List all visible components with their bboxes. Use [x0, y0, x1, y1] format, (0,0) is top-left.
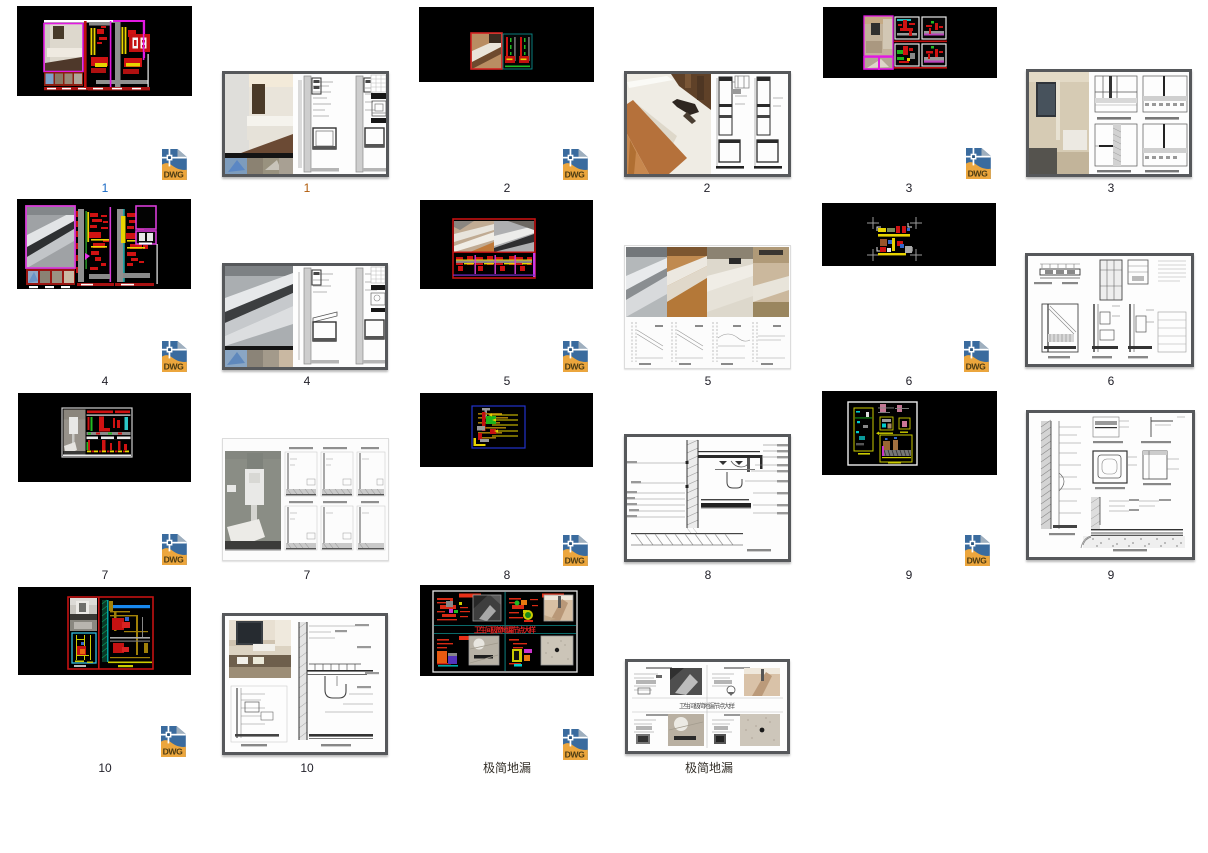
svg-text:卫生间极简地漏节点大样: 卫生间极简地漏节点大样: [679, 701, 736, 710]
svg-text:卫生间极简地漏节点大样: 卫生间极简地漏节点大样: [474, 625, 536, 634]
